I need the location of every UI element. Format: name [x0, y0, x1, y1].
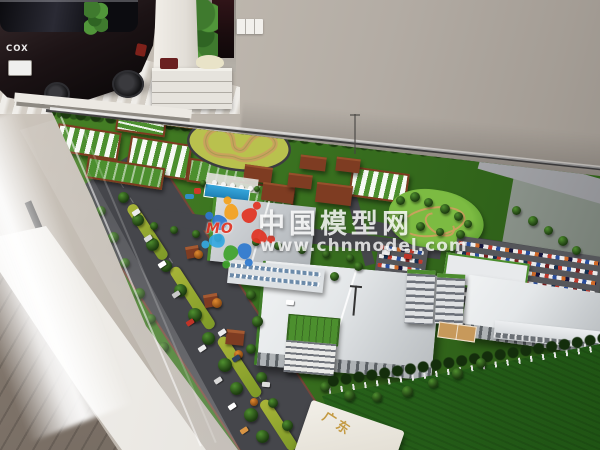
- logo-figure-icon: [218, 243, 239, 270]
- showroom-scene: COX: [0, 0, 600, 450]
- logo-mo-text: MO: [206, 221, 234, 237]
- watermark: MO 中国模型网 www.chnmodel.com: [0, 0, 600, 450]
- watermark-site-url: www.chnmodel.com: [260, 236, 468, 256]
